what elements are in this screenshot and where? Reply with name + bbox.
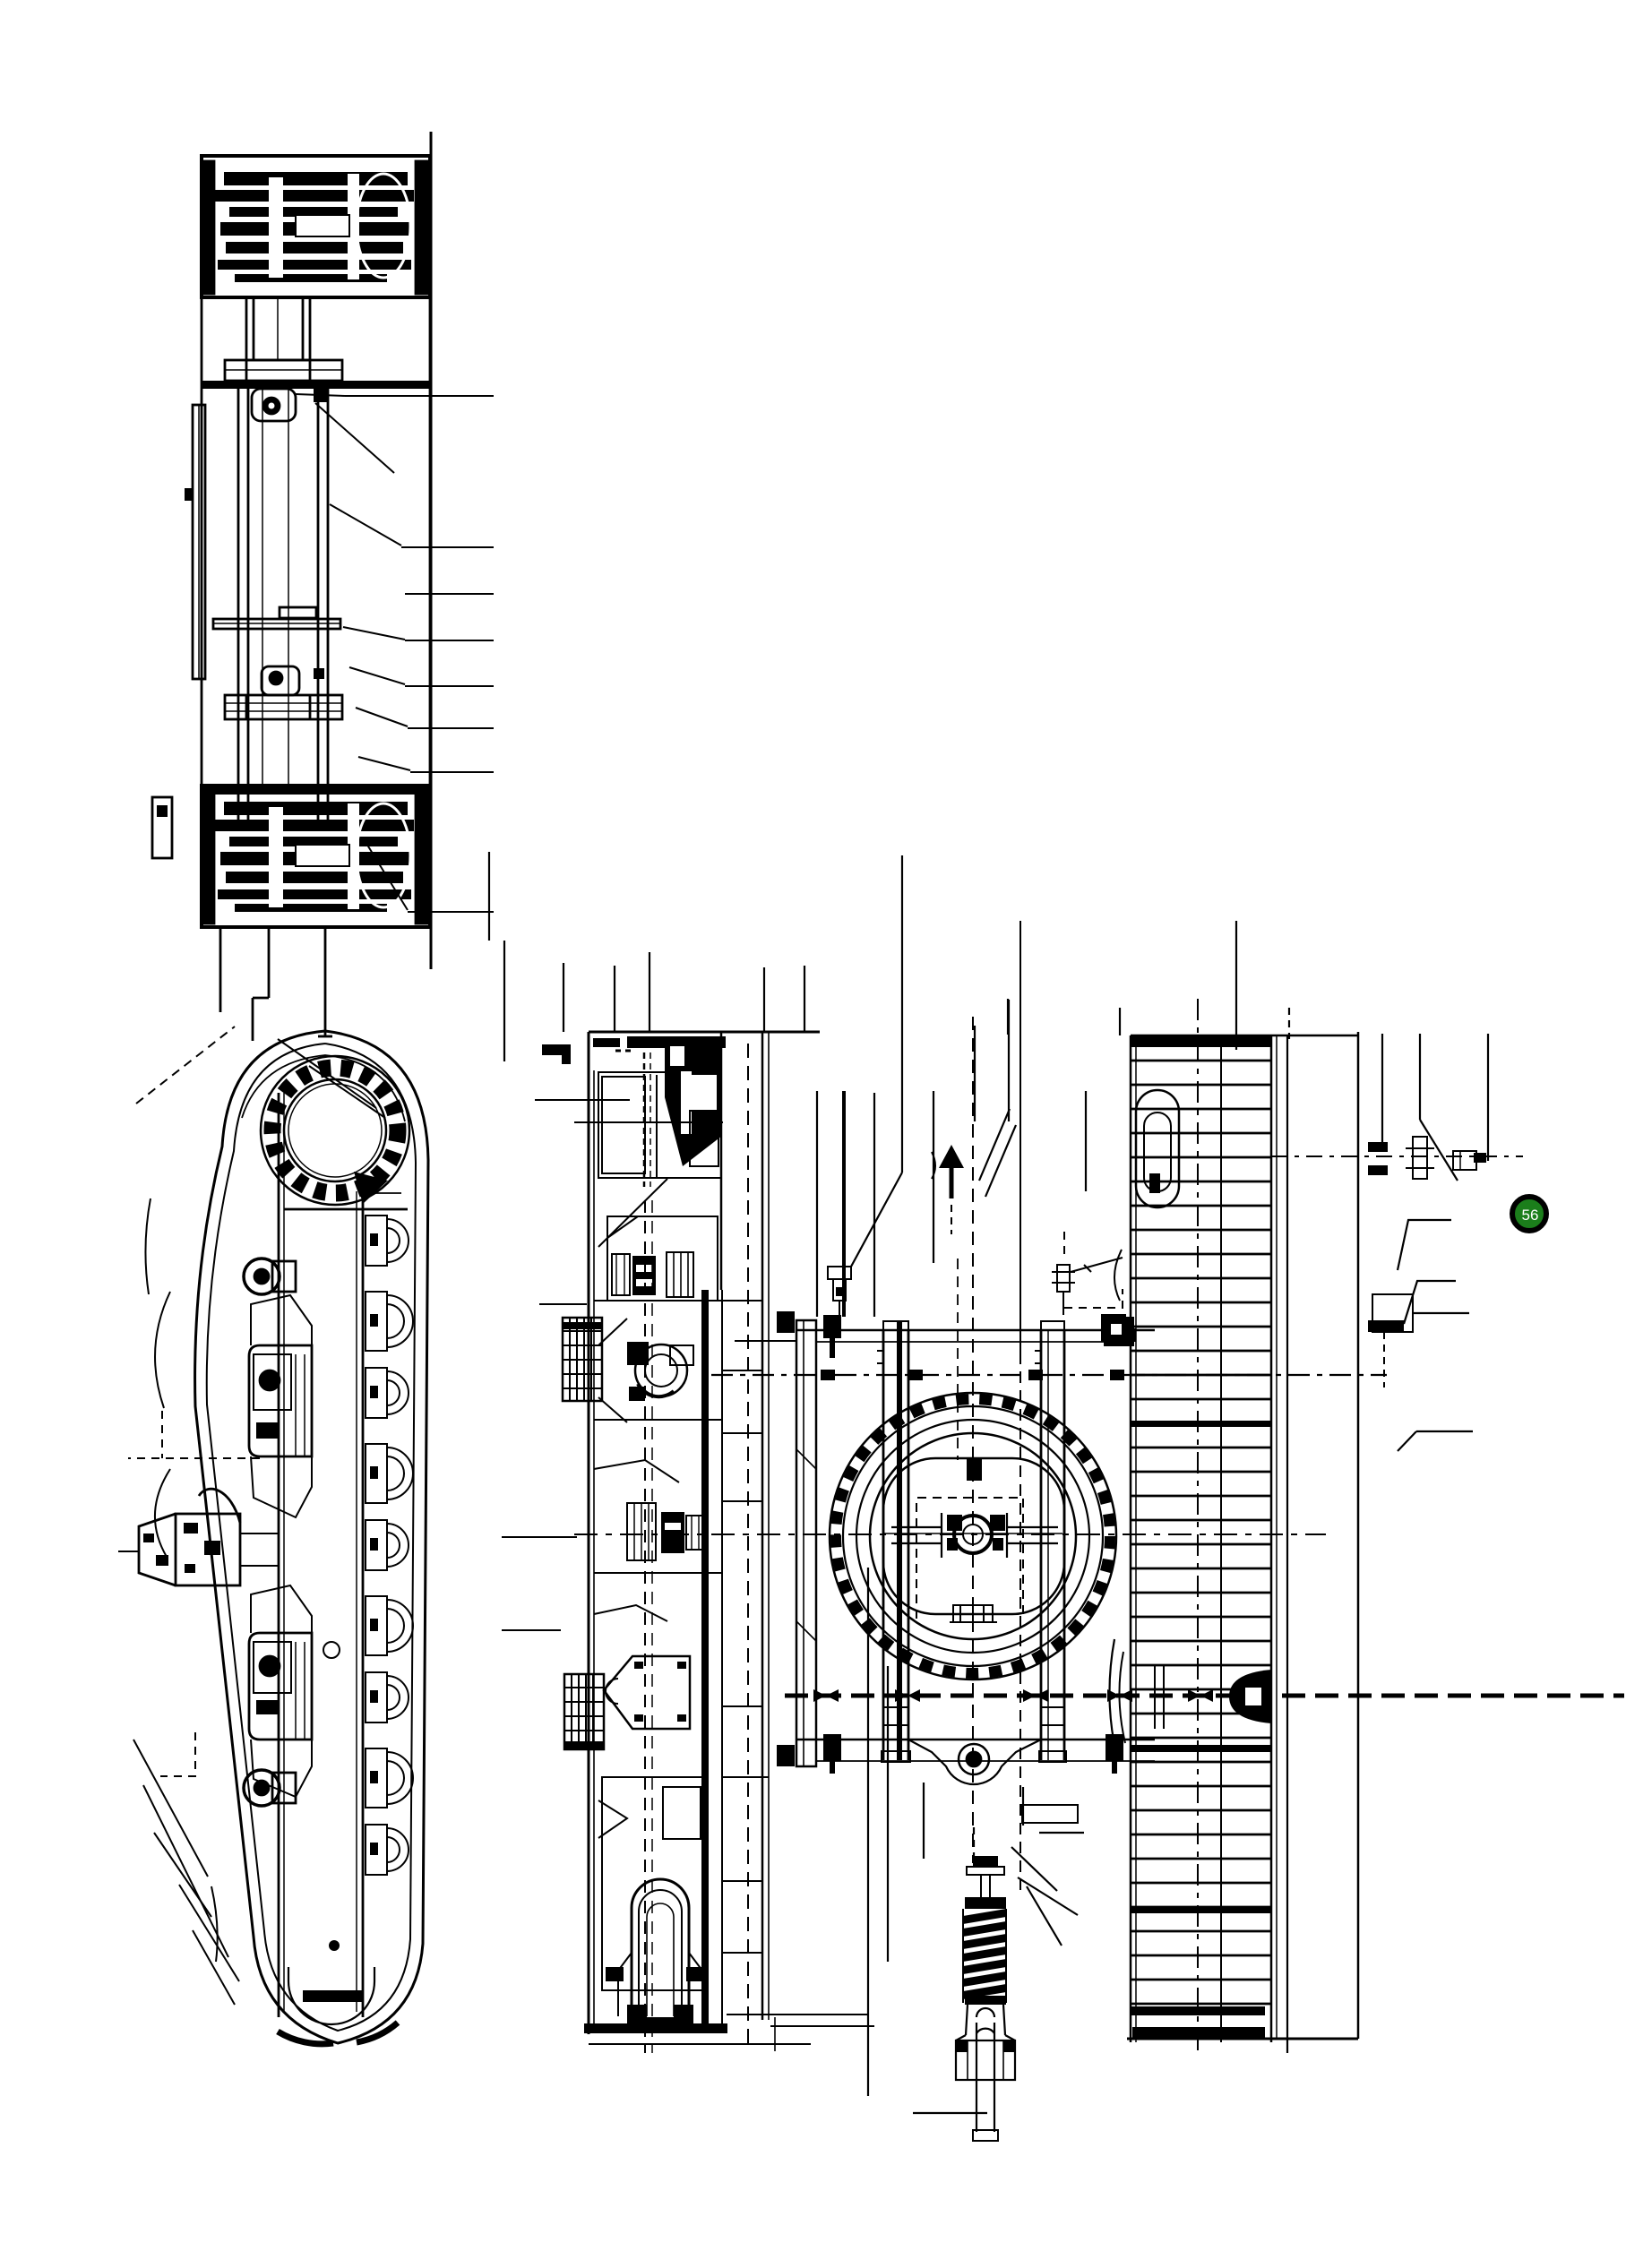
svg-text:56: 56 [1522,1207,1539,1224]
